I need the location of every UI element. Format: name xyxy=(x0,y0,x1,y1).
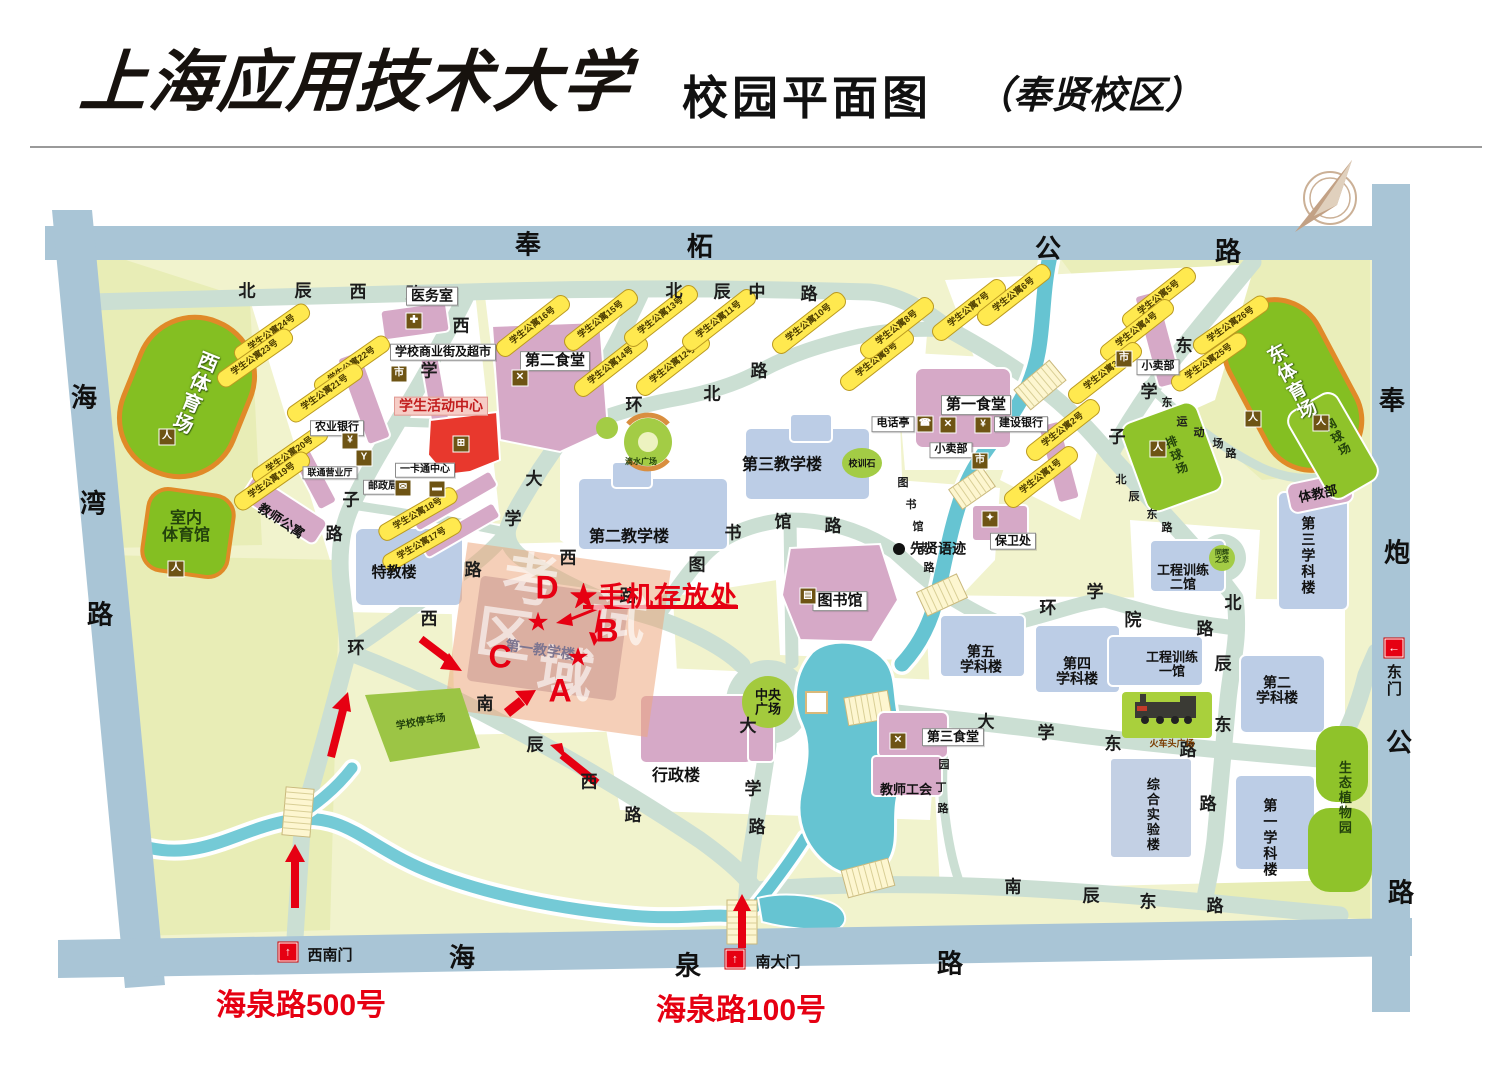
road-char: 北 xyxy=(704,380,721,405)
road-char: 东 xyxy=(1140,888,1157,913)
campus-map-canvas xyxy=(0,0,1512,1080)
road-char: 东 xyxy=(1105,730,1122,755)
map-label: 工程训练 一馆 xyxy=(1146,650,1198,677)
map-label: 医务室 xyxy=(406,287,458,306)
road-char: 子 xyxy=(1109,423,1126,448)
sage-quotes-dot xyxy=(893,543,905,555)
minor-road-char: 园 xyxy=(939,756,950,772)
road-char: 东 xyxy=(1215,711,1232,736)
minor-road-char: 路 xyxy=(924,559,935,575)
map-label: 学生活动中心 xyxy=(394,397,488,416)
map-label: 联通营业厅 xyxy=(302,466,357,479)
minor-road-char: 北 xyxy=(1116,471,1127,487)
phone-icon: ☎ xyxy=(917,416,934,433)
minor-road-char: 东 xyxy=(1162,394,1173,410)
road-char: 西 xyxy=(453,312,470,337)
road-char: 辰 xyxy=(1215,650,1232,675)
dining-icon: ✕ xyxy=(890,733,907,750)
road-char: 学 xyxy=(1141,378,1158,403)
road-char: 馆 xyxy=(775,508,792,533)
minor-road-char: 路 xyxy=(1162,519,1173,535)
map-label: 第二 学科楼 xyxy=(1256,675,1298,704)
map-label: 建设银行 xyxy=(994,416,1048,432)
road-char: 辰 xyxy=(1083,882,1100,907)
map-label: 滴水广场 xyxy=(625,458,657,466)
road-char: 北 xyxy=(239,277,256,302)
minor-road-char: 图 xyxy=(898,474,909,490)
map-label: 小卖部 xyxy=(1137,359,1180,375)
map-label: 特教楼 xyxy=(371,565,416,581)
road-char: 路 xyxy=(465,556,482,581)
road-char: 路 xyxy=(1200,790,1217,815)
minor-road-char: 路 xyxy=(938,800,949,816)
southwest-gate-address: 海泉路500号 xyxy=(216,980,386,1024)
gate-label: 东门 xyxy=(1385,664,1401,698)
map-label: 第三学科楼 xyxy=(1301,516,1316,596)
road-char: 路 xyxy=(1197,615,1214,640)
road-char: 东 xyxy=(1176,332,1193,357)
gate-label: 西南门 xyxy=(307,948,352,964)
phone-storage-annotation: ★手机存放处 xyxy=(570,575,738,614)
road-char: 学 xyxy=(745,775,762,800)
medical-icon: ✚ xyxy=(406,313,423,330)
road-char: 院 xyxy=(1125,606,1142,631)
dining-icon: ✕ xyxy=(512,370,529,387)
phone-storage-star: ★ xyxy=(526,607,549,638)
gate-label: 南大门 xyxy=(755,955,800,971)
runner-icon: 人 xyxy=(159,429,176,446)
map-label: 第三食堂 xyxy=(922,728,984,746)
minor-road-char: 辰 xyxy=(1129,488,1140,504)
road-char: 北 xyxy=(1225,589,1242,614)
runner-icon: 人 xyxy=(1313,415,1330,432)
perimeter-road-char: 路 xyxy=(1388,873,1414,910)
security-icon: ✦ xyxy=(982,511,999,528)
map-label: 第四 学科楼 xyxy=(1056,656,1098,685)
map-label: 第二食堂 xyxy=(520,351,590,371)
minor-road-char: 东 xyxy=(1147,506,1158,522)
activity-icon: ⊞ xyxy=(453,436,470,453)
perimeter-road-char: 海 xyxy=(71,378,97,415)
map-label: 工程训练 二馆 xyxy=(1157,563,1209,590)
signal-icon: Y xyxy=(356,450,373,467)
south-gate-address: 海泉路100号 xyxy=(656,985,826,1029)
road-char: 辰 xyxy=(527,731,544,756)
road-char: 学 xyxy=(1038,719,1055,744)
road-char: 西 xyxy=(581,768,598,793)
minor-road-char: 场 xyxy=(1213,435,1224,451)
map-label: 生态植物园 xyxy=(1337,761,1351,836)
map-label: 小卖部 xyxy=(930,442,973,458)
road-char: 中 xyxy=(749,278,766,303)
road-char: 图 xyxy=(689,551,706,576)
map-label: 学校商业街及超市 xyxy=(390,344,496,361)
map-label: 中央 广场 xyxy=(755,688,781,715)
road-char: 路 xyxy=(1207,892,1224,917)
perimeter-road-char: 泉 xyxy=(675,946,701,983)
bank-icon: ¥ xyxy=(342,433,359,450)
road-char: 路 xyxy=(801,280,818,305)
road-char: 路 xyxy=(625,801,642,826)
bank-icon: ¥ xyxy=(975,417,992,434)
map-label: 校训石 xyxy=(848,459,875,468)
road-char: 辰 xyxy=(714,278,731,303)
road-char: 大 xyxy=(740,712,757,737)
perimeter-road-char: 公 xyxy=(1035,229,1061,266)
map-label: 综合实验楼 xyxy=(1145,778,1159,853)
dining-icon: ✕ xyxy=(940,417,957,434)
map-label: 行政楼 xyxy=(652,769,700,786)
map-label: 电话亭 xyxy=(872,416,915,432)
card-icon: ▬ xyxy=(429,481,446,498)
map-label: 先贤语迹 xyxy=(910,542,966,557)
road-char: 北 xyxy=(666,277,683,302)
campus-map-page: 上海应用技术大学 校园平面图 （奉贤校区） xyxy=(0,0,1512,1080)
road-char: 路 xyxy=(749,813,766,838)
runner-icon: 人 xyxy=(1245,411,1262,428)
minor-road-char: 丁 xyxy=(936,779,947,795)
road-char: 环 xyxy=(626,391,643,416)
phone-storage-star: ★ xyxy=(566,642,589,673)
runner-icon: 人 xyxy=(168,561,185,578)
perimeter-road-char: 路 xyxy=(1215,232,1241,269)
exam-building-letter: A xyxy=(548,673,571,710)
runner-icon: 人 xyxy=(1150,441,1167,458)
map-label: 火车头广场 xyxy=(1149,739,1194,748)
minor-road-char: 动 xyxy=(1194,424,1205,440)
map-label: 同辉 之恋 xyxy=(1215,550,1229,565)
road-char: 西 xyxy=(421,605,438,630)
map-label: 第三教学楼 xyxy=(742,458,822,475)
compass-icon xyxy=(1295,160,1356,232)
road-char: 路 xyxy=(751,357,768,382)
road-char: 大 xyxy=(526,465,543,490)
road-char: 路 xyxy=(326,520,343,545)
map-label: 第一食堂 xyxy=(941,395,1011,415)
road-char: 西 xyxy=(350,278,367,303)
perimeter-road-char: 路 xyxy=(937,944,963,981)
perimeter-road-char: 湾 xyxy=(80,484,106,521)
road-char: 学 xyxy=(1087,578,1104,603)
exam-building-letter: B xyxy=(595,613,618,650)
perimeter-road-char: 炮 xyxy=(1384,533,1410,570)
cart-icon: 市 xyxy=(391,366,408,383)
book-icon: ▤ xyxy=(800,588,817,605)
minor-road-char: 馆 xyxy=(913,518,924,534)
perimeter-road-char: 柘 xyxy=(687,227,713,264)
road-char: 西 xyxy=(560,544,577,569)
map-label: 一卡通中心 xyxy=(395,463,455,478)
minor-road-char: 运 xyxy=(1177,413,1188,429)
map-label: 室内 体育馆 xyxy=(162,511,210,545)
map-label: 教师工会 xyxy=(880,783,932,797)
perimeter-road-char: 路 xyxy=(87,595,113,632)
map-label: 第二教学楼 xyxy=(589,530,669,547)
perimeter-road-char: 海 xyxy=(449,938,475,975)
map-label: 第一学科楼 xyxy=(1263,798,1278,878)
road-char: 南 xyxy=(1005,873,1022,898)
gate-icon: ↑ xyxy=(726,950,745,969)
exam-building-letter: D xyxy=(535,570,558,607)
road-char: 子 xyxy=(343,486,360,511)
cart-icon: 市 xyxy=(1116,351,1133,368)
cart-icon: 市 xyxy=(972,453,989,470)
exam-building-letter: C xyxy=(488,639,511,676)
map-label: 保卫处 xyxy=(990,533,1036,550)
road-char: 环 xyxy=(1040,594,1057,619)
map-label: 图书馆 xyxy=(812,591,867,611)
perimeter-road-char: 公 xyxy=(1386,723,1412,760)
road-char: 学 xyxy=(505,505,522,530)
postal-icon: ✉ xyxy=(395,480,412,497)
map-label: 第五 学科楼 xyxy=(960,644,1002,673)
road-char: 南 xyxy=(477,690,494,715)
road-char: 路 xyxy=(825,512,842,537)
minor-road-char: 书 xyxy=(906,496,917,512)
gate-icon: ↑ xyxy=(279,943,298,962)
perimeter-road-char: 奉 xyxy=(515,225,541,262)
minor-road-char: 路 xyxy=(1226,445,1237,461)
road-char: 书 xyxy=(725,519,742,544)
road-char: 环 xyxy=(348,634,365,659)
gate-icon: ← xyxy=(1385,639,1404,658)
perimeter-road-char: 奉 xyxy=(1379,381,1405,418)
road-char: 辰 xyxy=(295,277,312,302)
